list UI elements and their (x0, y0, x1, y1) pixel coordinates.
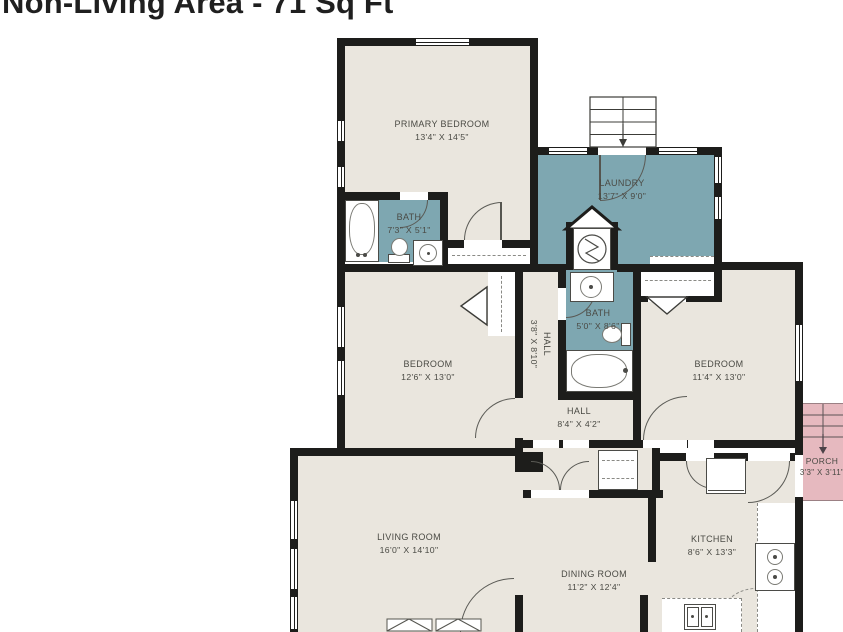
wall-segment (515, 264, 523, 398)
stove-burner-dot (773, 575, 777, 579)
floor-plan: Non-Living Area - 71 Sq Ft (0, 0, 843, 632)
wall-segment (714, 262, 803, 270)
linen-closet-shelf (602, 460, 634, 462)
window (337, 166, 345, 188)
wall-segment (530, 38, 538, 272)
linen-closet (598, 450, 638, 490)
window (714, 196, 722, 220)
wall-segment (290, 448, 523, 456)
window (548, 147, 588, 155)
wall-segment (714, 262, 722, 302)
room-label-living-room: LIVING ROOM16'0" X 14'10" (377, 531, 441, 557)
window (290, 500, 298, 540)
door-gap (598, 147, 646, 155)
window (337, 306, 345, 348)
window (658, 147, 698, 155)
wall-segment (648, 490, 656, 562)
room-label-bath-primary: BATH7'3" X 5'1" (387, 211, 430, 237)
door-gap (464, 240, 502, 248)
room-label-laundry: LAUNDRY13'7" X 9'0" (598, 177, 646, 203)
toilet-bowl (391, 238, 408, 256)
stove-burner-dot (773, 555, 777, 559)
wall-segment (640, 595, 648, 632)
porch-stairs-icon (803, 404, 843, 460)
bathtub-basin (571, 354, 627, 388)
window (337, 120, 345, 142)
window (795, 324, 803, 382)
bathtub-basin (349, 203, 375, 255)
window (290, 548, 298, 590)
window (290, 596, 298, 630)
staircase-icon (589, 96, 657, 148)
bathtub-faucet (623, 368, 628, 373)
room-label-kitchen: KITCHEN8'6" X 13'3" (688, 533, 736, 559)
wall-segment (337, 192, 448, 200)
wall-segment (558, 392, 641, 400)
built-in-cabinet-icon (386, 618, 482, 632)
closet (641, 268, 714, 296)
closet-rod (645, 280, 711, 282)
bathtub-faucet (356, 253, 360, 257)
door-gap (558, 288, 566, 320)
wall-segment (337, 264, 566, 272)
linen-closet-shelf (602, 478, 634, 480)
sink-drain (691, 615, 694, 618)
toilet-icon (621, 323, 631, 346)
door-gap (748, 453, 790, 461)
page-title: Non-Living Area - 71 Sq Ft (2, 0, 394, 21)
window (415, 38, 470, 46)
water-heater-symbol (573, 228, 611, 270)
sink-drain (589, 285, 593, 289)
room-label-hall-lower: HALL8'4" X 4'2" (557, 405, 600, 431)
door-gap (563, 440, 589, 448)
sink-drain (705, 615, 708, 618)
closet-rod (452, 255, 526, 257)
window (714, 156, 722, 184)
room-label-bedroom-left: BEDROOM12'6" X 13'0" (401, 358, 455, 384)
refrigerator-icon (706, 458, 746, 494)
door-gap (643, 440, 687, 448)
bathtub-faucet (363, 253, 367, 257)
room-label-hall-upper: HALL3'8" X 8'10" (527, 320, 553, 368)
door-gap (688, 440, 714, 448)
door-leaf (500, 202, 502, 240)
door-gap (533, 440, 559, 448)
room-label-bath-hall: BATH5'0" X 8'6" (576, 307, 619, 333)
niche-peak-icon (564, 204, 620, 230)
wall-segment (558, 268, 566, 392)
door-gap (531, 490, 589, 498)
window (337, 360, 345, 396)
wall-segment (617, 264, 714, 272)
room-label-porch: PORCH3'3" X 3'11" (800, 455, 843, 479)
room-label-dining-room: DINING ROOM11'2" X 12'4" (561, 568, 627, 594)
door-opening-floor (515, 398, 523, 438)
wall-segment (633, 264, 641, 448)
bifold-door-icon (460, 286, 488, 326)
refrigerator-door-line (708, 490, 744, 492)
room-label-bedroom-right: BEDROOM11'4" X 13'0" (692, 358, 745, 384)
wall-segment (515, 595, 523, 632)
door-gap (400, 192, 428, 200)
room-label-primary-bedroom: PRIMARY BEDROOM13'4" X 14'5" (395, 118, 490, 144)
bifold-door-icon (646, 296, 688, 316)
sink-drain (427, 252, 430, 255)
closet-rod (501, 276, 503, 332)
